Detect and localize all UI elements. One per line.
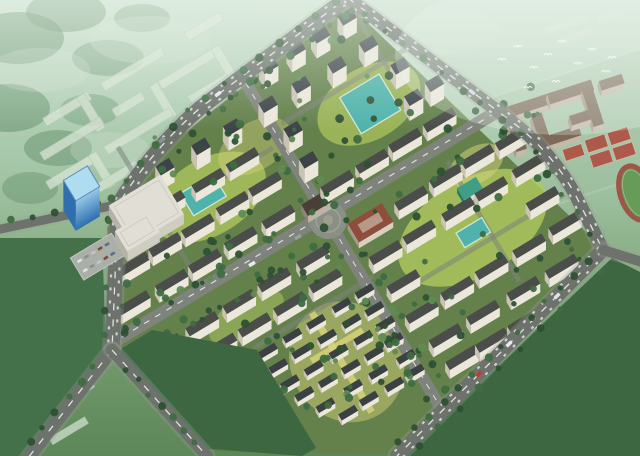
roadside-tree xyxy=(27,438,35,446)
roadside-tree xyxy=(598,269,605,276)
roadside-tree xyxy=(101,307,108,314)
roadside-tree xyxy=(416,442,424,450)
roadside-tree xyxy=(570,272,578,280)
roadside-tree xyxy=(557,306,563,312)
roadside-tree xyxy=(7,216,15,224)
roadside-tree xyxy=(543,170,552,179)
roadside-tree xyxy=(411,424,418,431)
roadside-tree xyxy=(123,367,129,373)
roadside-tree xyxy=(496,365,502,371)
roadside-tree xyxy=(528,314,535,321)
roadside-tree xyxy=(137,160,145,168)
roadside-tree xyxy=(78,378,87,387)
roadside-tree xyxy=(176,149,181,154)
roadside-tree xyxy=(394,438,401,445)
roadside-tree xyxy=(585,257,593,265)
roadside-tree xyxy=(108,194,116,202)
roadside-tree xyxy=(158,402,166,410)
roadside-tree xyxy=(101,332,108,339)
roadside-tree xyxy=(152,141,160,149)
roadside-tree xyxy=(441,398,449,406)
roadside-tree xyxy=(537,324,545,332)
roadside-tree xyxy=(89,364,95,370)
roadside-tree xyxy=(180,427,187,434)
roadside-tree xyxy=(457,405,464,412)
roadside-tree xyxy=(189,130,197,138)
roadside-tree xyxy=(533,149,538,154)
roadside-tree xyxy=(425,413,433,421)
roadside-tree xyxy=(121,329,129,337)
roadside-tree xyxy=(39,425,45,431)
roadside-tree xyxy=(169,413,176,420)
roadside-tree xyxy=(558,285,563,290)
roadside-tree xyxy=(454,384,462,392)
roadside-tree xyxy=(475,383,483,391)
roadside-tree xyxy=(587,231,592,236)
roadside-tree xyxy=(50,408,58,416)
roadside-tree xyxy=(518,347,524,353)
roadside-tree xyxy=(145,392,150,397)
roadside-tree xyxy=(136,376,141,381)
roadside-tree xyxy=(559,192,564,197)
roadside-tree xyxy=(515,330,520,335)
roadside-tree xyxy=(577,290,582,295)
roadside-tree xyxy=(120,304,125,309)
scene-svg: Aerial rendering of residential communit… xyxy=(0,0,640,456)
roadside-tree xyxy=(158,166,166,174)
roadside-tree xyxy=(468,371,475,378)
roadside-tree xyxy=(124,178,130,184)
aerial-rendering: Aerial rendering of residential communit… xyxy=(0,0,640,456)
roadside-tree xyxy=(575,209,581,215)
roadside-tree xyxy=(498,344,503,349)
roadside-tree xyxy=(485,353,493,361)
roadside-tree xyxy=(103,284,109,290)
roadside-tree xyxy=(30,214,36,220)
roadside-tree xyxy=(66,394,72,400)
roadside-tree xyxy=(191,440,197,446)
roadside-tree xyxy=(542,299,547,304)
roadside-tree xyxy=(51,209,59,217)
roadside-tree xyxy=(435,423,442,430)
roadside-tree xyxy=(123,279,131,287)
